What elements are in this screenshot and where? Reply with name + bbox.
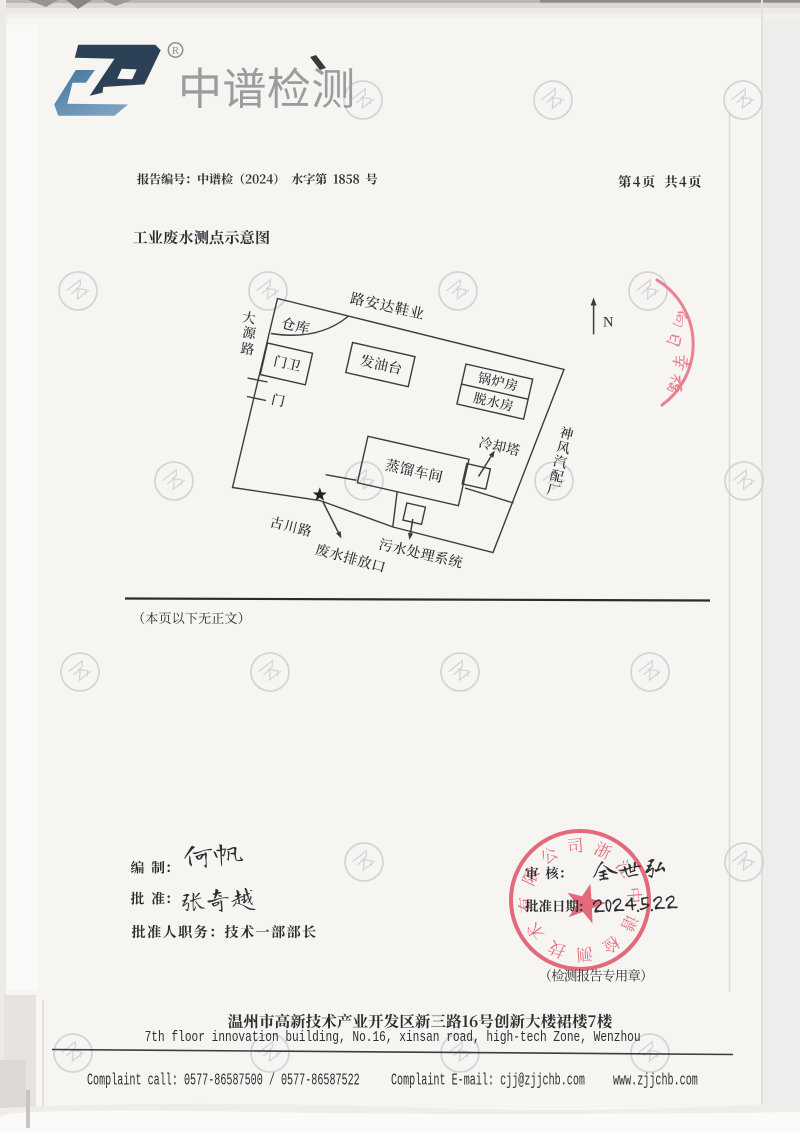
svg-text:N: N xyxy=(603,315,614,331)
svg-text:7th floor innovation building,: 7th floor innovation building, No.16, xi… xyxy=(145,1029,641,1046)
svg-text:R: R xyxy=(172,45,180,57)
svg-text:Complaint E-mail: cjj@zjjchb.c: Complaint E-mail: cjj@zjjchb.com xyxy=(391,1071,585,1090)
svg-text:Complaint call: 0577-86587500: Complaint call: 0577-86587500 / 0577-865… xyxy=(87,1071,360,1090)
svg-text:www.zjjchb.com: www.zjjchb.com xyxy=(613,1071,698,1090)
